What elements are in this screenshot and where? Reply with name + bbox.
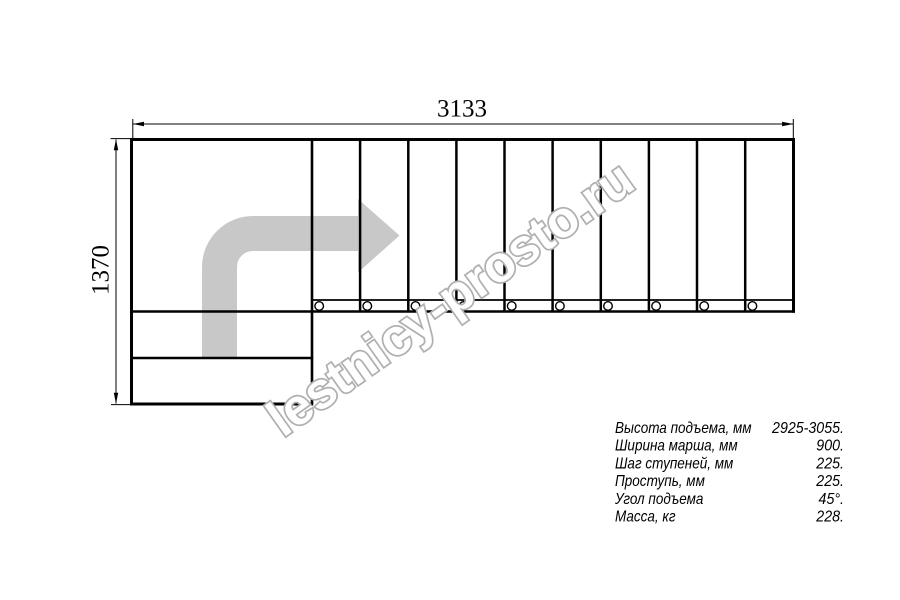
- svg-text:225.: 225.: [815, 455, 844, 473]
- svg-text:1370: 1370: [88, 245, 115, 295]
- svg-text:Проступь, мм: Проступь, мм: [615, 473, 705, 490]
- svg-text:45°.: 45°.: [819, 490, 844, 508]
- svg-text:Шаг ступеней, мм: Шаг ступеней, мм: [615, 455, 733, 472]
- svg-text:Угол подъема: Угол подъема: [614, 491, 703, 508]
- svg-text:Масса, кг: Масса, кг: [615, 509, 675, 526]
- svg-text:2925-3055.: 2925-3055.: [771, 419, 844, 437]
- svg-text:225.: 225.: [815, 472, 844, 490]
- svg-text:Ширина марша, мм: Ширина марша, мм: [615, 438, 738, 455]
- svg-text:Высота подъема, мм: Высота подъема, мм: [615, 420, 752, 437]
- svg-text:900.: 900.: [816, 437, 844, 455]
- svg-text:228.: 228.: [815, 508, 844, 526]
- svg-text:3133: 3133: [437, 96, 487, 123]
